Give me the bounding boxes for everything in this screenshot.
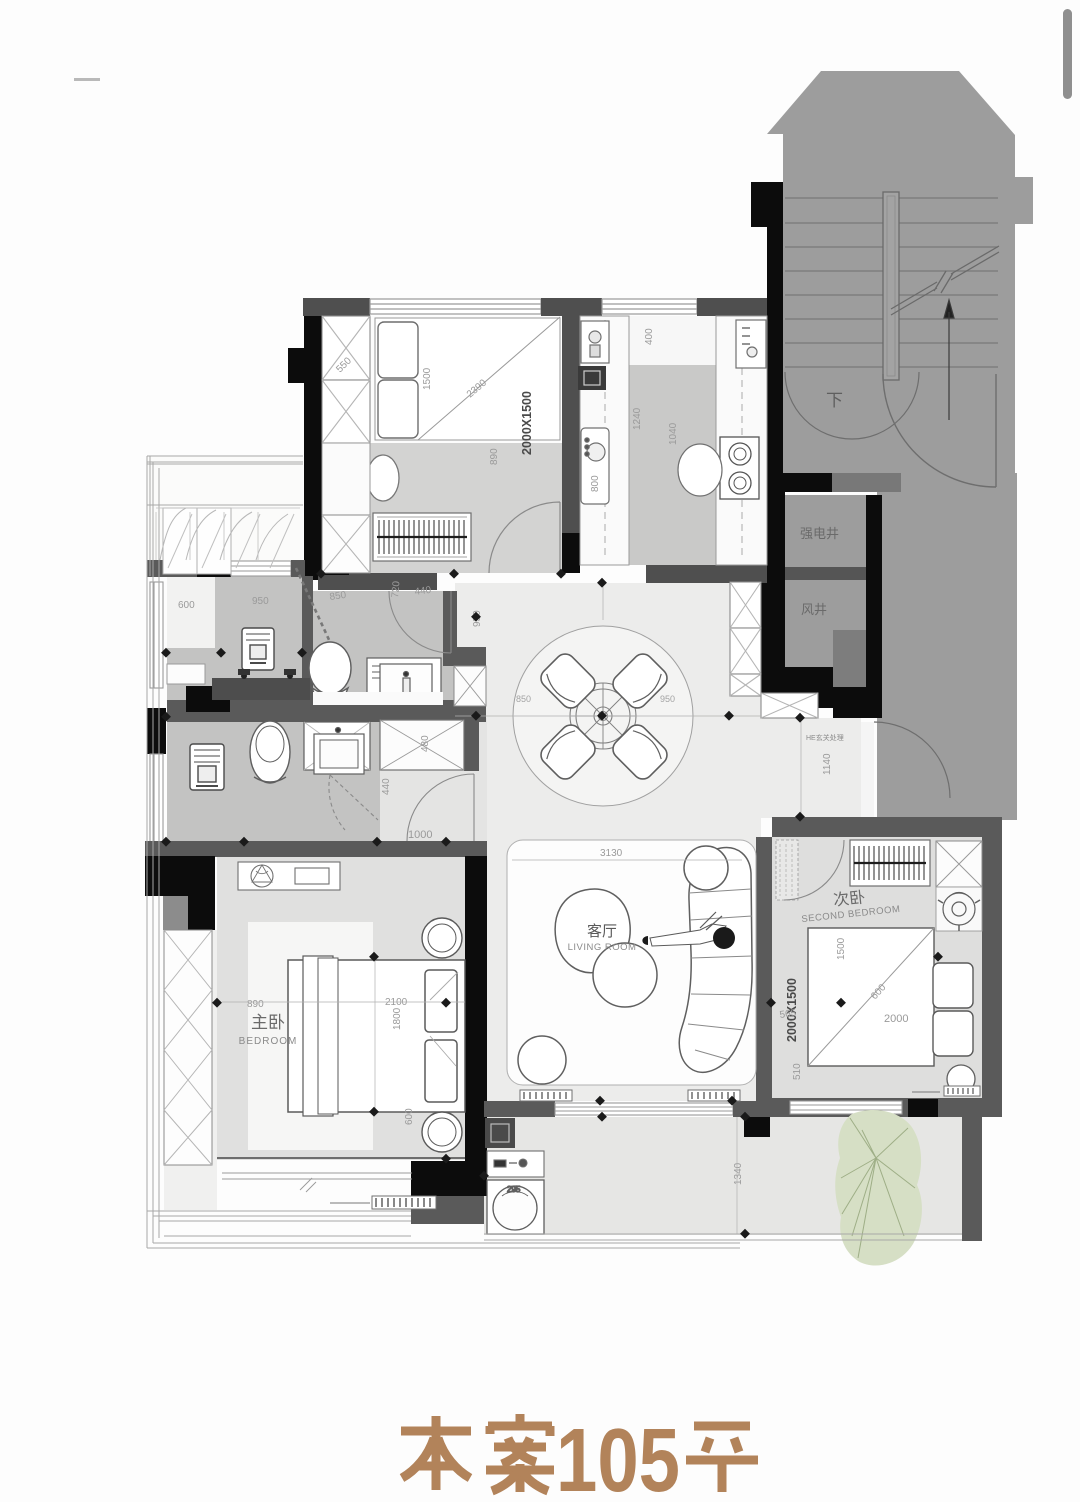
svg-text:600: 600 [178, 600, 195, 611]
svg-text:1340: 1340 [733, 1162, 744, 1185]
svg-text:800: 800 [590, 475, 601, 492]
svg-text:1800: 1800 [392, 1007, 403, 1030]
svg-text:主卧: 主卧 [251, 1013, 285, 1032]
svg-text:890: 890 [247, 999, 264, 1010]
svg-text:2100: 2100 [385, 997, 408, 1008]
svg-text:950: 950 [252, 596, 269, 607]
svg-text:600: 600 [404, 1108, 415, 1125]
svg-text:1000: 1000 [408, 829, 432, 841]
svg-text:850: 850 [516, 694, 531, 704]
svg-text:480: 480 [420, 735, 431, 752]
svg-text:1500: 1500 [422, 367, 433, 390]
svg-text:LIVING ROOM: LIVING ROOM [568, 942, 637, 953]
svg-text:105: 105 [556, 1411, 680, 1502]
svg-text:下: 下 [826, 391, 843, 410]
svg-text:BEDROOM: BEDROOM [239, 1036, 298, 1047]
svg-text:950: 950 [660, 694, 675, 704]
svg-text:1500: 1500 [836, 937, 847, 960]
svg-text:440: 440 [381, 778, 392, 795]
svg-text:890: 890 [489, 448, 500, 465]
svg-text:1140: 1140 [822, 753, 833, 775]
svg-text:1240: 1240 [632, 407, 643, 430]
svg-text:2000: 2000 [884, 1013, 908, 1025]
svg-text:510: 510 [792, 1063, 803, 1080]
svg-text:400: 400 [644, 328, 655, 345]
svg-text:HE玄关处理: HE玄关处理 [806, 733, 844, 742]
svg-text:720: 720 [390, 580, 402, 598]
svg-text:1040: 1040 [668, 422, 679, 445]
svg-text:295: 295 [507, 1185, 521, 1194]
svg-text:风井: 风井 [801, 602, 827, 617]
svg-text:3130: 3130 [600, 848, 623, 859]
svg-text:2000X1500: 2000X1500 [520, 391, 534, 455]
svg-text:强电井: 强电井 [800, 526, 839, 541]
svg-text:次卧: 次卧 [832, 888, 866, 909]
svg-text:客厅: 客厅 [587, 923, 617, 940]
